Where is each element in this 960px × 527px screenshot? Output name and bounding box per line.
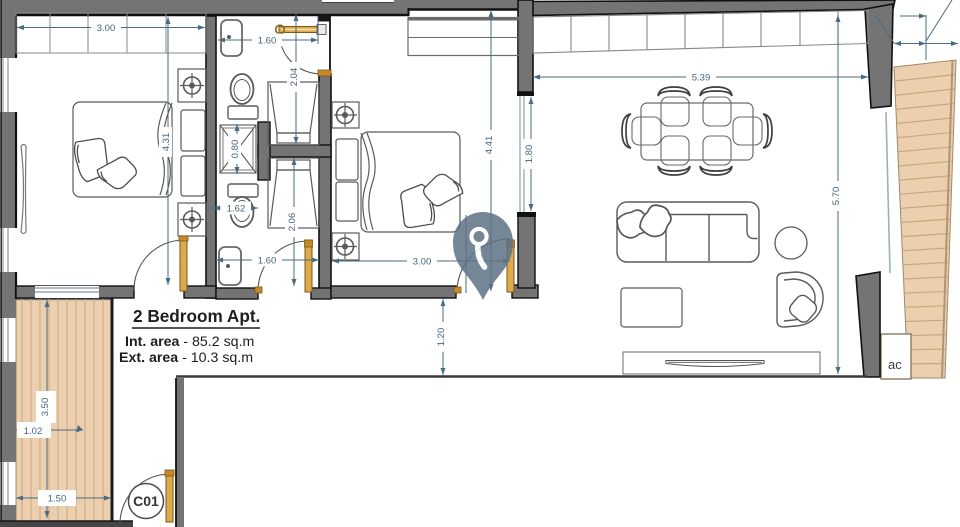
svg-text:3.00: 3.00 (413, 257, 432, 268)
svg-text:C01: C01 (133, 493, 159, 509)
svg-text:1.02: 1.02 (24, 426, 43, 437)
svg-text:1.80: 1.80 (524, 145, 535, 164)
svg-text:4.31: 4.31 (161, 133, 172, 152)
svg-text:2.04: 2.04 (289, 68, 300, 87)
svg-text:5.70: 5.70 (831, 187, 842, 206)
svg-text:2.06: 2.06 (287, 213, 298, 232)
svg-text:3.50: 3.50 (40, 398, 51, 417)
svg-text:1.60: 1.60 (258, 256, 277, 267)
svg-text:1.62: 1.62 (227, 204, 246, 215)
svg-text:4.41: 4.41 (484, 136, 495, 155)
svg-text:Int. area - 85.2 sq.m: Int. area - 85.2 sq.m (125, 334, 254, 350)
svg-text:Ext. area - 10.3 sq.m: Ext. area - 10.3 sq.m (119, 350, 253, 366)
svg-text:1.60: 1.60 (258, 36, 277, 47)
svg-text:3.00: 3.00 (97, 23, 116, 34)
svg-text:ac: ac (888, 357, 902, 372)
svg-text:2 Bedroom Apt.: 2 Bedroom Apt. (133, 306, 260, 326)
svg-text:5.39: 5.39 (692, 73, 711, 84)
svg-text:1.50: 1.50 (48, 494, 67, 505)
svg-text:1.20: 1.20 (436, 328, 447, 347)
svg-text:0.80: 0.80 (230, 140, 241, 159)
